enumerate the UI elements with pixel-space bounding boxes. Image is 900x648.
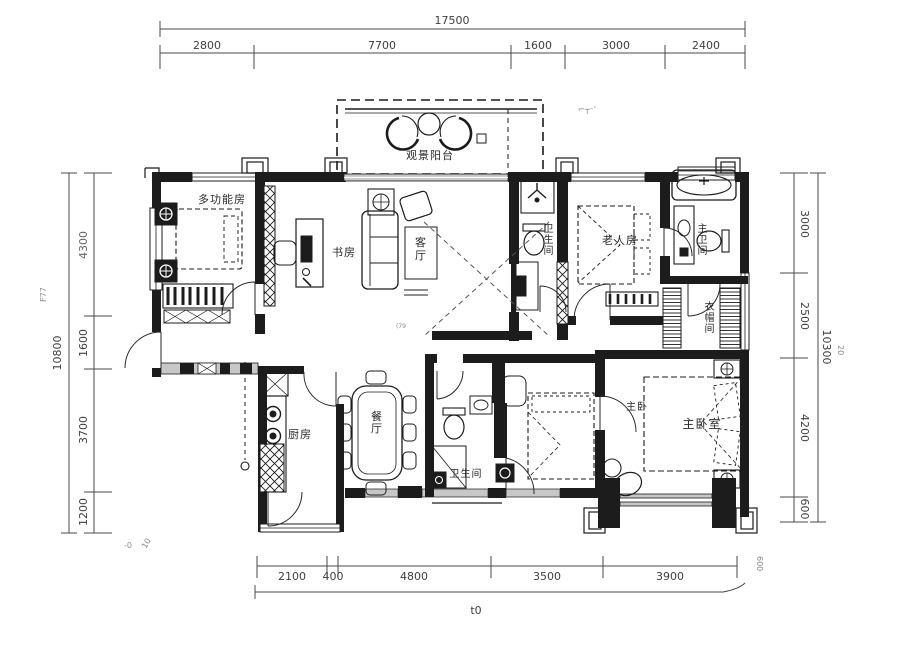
dim-top-seg-3000: 3000 [602, 39, 630, 52]
label-bath-top: 卫生间 [544, 224, 555, 257]
dimension-top [160, 21, 745, 69]
entry-vestibule [521, 177, 554, 213]
label-balcony: 观景阳台 [406, 148, 454, 162]
dim-bottom-total: t0 [470, 604, 481, 617]
artifact-bottom-left-2: 10 [140, 537, 153, 550]
label-master-bath: 主卫间 [698, 223, 709, 257]
artifact-right-20: 20 [836, 345, 845, 355]
dim-right-seg-600: 600 [798, 499, 811, 520]
dim-right-seg-3000: 3000 [798, 210, 811, 238]
dim-right-seg-2500: 2500 [798, 302, 811, 330]
dim-bottom-seg-400: 400 [323, 570, 344, 583]
label-study: 书房 [332, 246, 356, 259]
label-bath-bottom: 卫生间 [450, 467, 483, 480]
dim-top-seg-2800: 2800 [193, 39, 221, 52]
artifact-right-600: 600 [755, 556, 764, 571]
label-master-small: 主卧 [626, 400, 648, 413]
bath-top-fixtures [516, 224, 545, 310]
dim-top-seg-7700: 7700 [368, 39, 396, 52]
dim-bottom-seg-3500: 3500 [533, 570, 561, 583]
study-furniture [274, 219, 323, 287]
dim-left-total: 10800 [51, 336, 64, 371]
dim-top-seg-1600: 1600 [524, 39, 552, 52]
multi-room-furniture [155, 203, 242, 323]
dim-top-seg-2400: 2400 [692, 39, 720, 52]
artifact-top-right: ⌐┬⁻' [578, 105, 596, 115]
floor-plan-page: 17500 2800 7700 1600 3000 2400 10800 430… [0, 0, 900, 648]
dim-right-total: 10300 [820, 330, 833, 365]
label-dining: 餐厅 [371, 409, 383, 435]
balcony-chairs [387, 113, 486, 149]
door-swings [125, 228, 720, 526]
label-kitchen: 厨房 [288, 428, 312, 441]
entry-shoe-cabinet [161, 363, 258, 374]
dim-bottom-seg-2100: 2100 [278, 570, 306, 583]
dim-left-seg-1200: 1200 [77, 498, 90, 526]
dim-left-seg-3700: 3700 [77, 416, 90, 444]
mid-bedroom-furniture [496, 376, 594, 482]
dim-right-seg-4200: 4200 [798, 414, 811, 442]
dim-left-seg-1600: 1600 [77, 329, 90, 357]
label-cloakroom: 衣帽间 [705, 300, 716, 335]
balcony-outline [337, 100, 543, 174]
label-master-bedroom: 主卧室 [682, 416, 721, 431]
dim-left-seg-4300: 4300 [77, 231, 90, 259]
label-living: 客厅 [415, 235, 427, 262]
dim-bottom-seg-3900: 3900 [656, 570, 684, 583]
dim-top-total: 17500 [435, 14, 470, 27]
artifact-left-margin: F77 [39, 287, 48, 302]
artifact-bottom-left-1: -0 [124, 541, 132, 550]
floor-plan-drawing: 17500 2800 7700 1600 3000 2400 10800 430… [0, 0, 900, 648]
label-elder-room: 老人房 [602, 234, 638, 247]
label-multi-room: 多功能房 [198, 192, 246, 206]
elder-room-furniture [578, 206, 658, 306]
dim-bottom-seg-4800: 4800 [400, 570, 428, 583]
artifact-dp: (79 [396, 323, 406, 330]
